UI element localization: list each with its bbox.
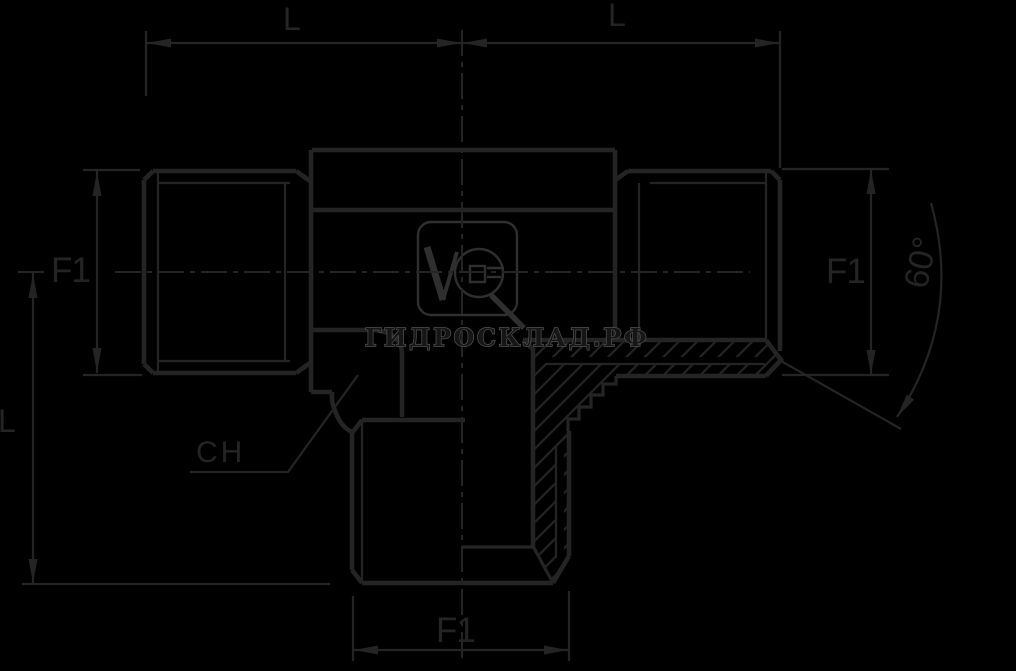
dimension-label-top-right-L: L bbox=[608, 0, 626, 33]
dimension-label-left-F1: F1 bbox=[51, 251, 90, 290]
dimension-label-branch-L: L bbox=[0, 403, 16, 439]
dimension-label-right-F1: F1 bbox=[826, 252, 865, 291]
watermark-text: ГИДРОСКЛАД.РФ bbox=[365, 323, 649, 352]
dimension-label-top-left-L: L bbox=[283, 1, 301, 37]
dimension-label-CH: CH bbox=[196, 436, 245, 469]
dimension-label-bottom-F1: F1 bbox=[436, 611, 475, 650]
technical-drawing: L L F1 F1 F1 L bbox=[0, 0, 1016, 671]
